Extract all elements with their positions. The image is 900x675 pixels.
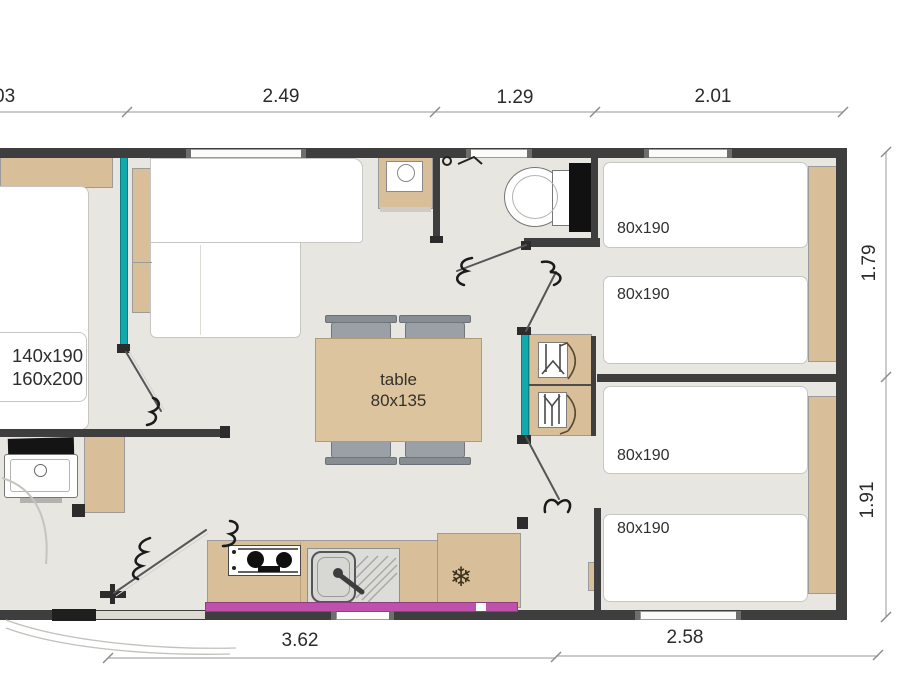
wall-wc-left [433, 158, 440, 242]
dining-table: table 80x135 [315, 338, 482, 442]
toilet-cistern [569, 163, 591, 232]
teal-partition-master [120, 154, 128, 346]
master-bed-size-1: 140x190 [12, 346, 83, 365]
dim-top-1: 2.49 [246, 87, 316, 107]
wc-vanity-shadow [380, 207, 431, 212]
window-cap [644, 149, 649, 158]
sofa-seam [200, 245, 201, 335]
window-cap [389, 611, 394, 620]
wardrobe-hall-niche-top [538, 342, 568, 378]
wall-wc-right [591, 158, 598, 242]
wall-right [836, 148, 847, 620]
wall-wardrobe-right [591, 336, 596, 436]
dim-bottom-1: 2.58 [650, 628, 720, 648]
chair-back [399, 457, 471, 465]
bay-window-notch [476, 603, 486, 611]
bath-vanity-base [20, 498, 62, 503]
table-size-label: 80x135 [371, 392, 427, 410]
dim-top-0: 03 [0, 87, 34, 107]
window-cap [301, 149, 306, 158]
single-bed-1-label: 80x190 [617, 221, 697, 238]
entrance-hinge-stem [110, 584, 115, 604]
chair-back [325, 457, 397, 465]
window-cap [727, 149, 732, 158]
hinge-mark-bath-wall [220, 426, 230, 438]
table-label: table [380, 371, 417, 389]
fridge-snowflake-icon: ❄ [444, 560, 478, 594]
leader-lines [6, 620, 236, 654]
bath-basin-drain [34, 464, 47, 477]
sofa-chaise [150, 242, 301, 338]
master-headboard-shelf [0, 156, 113, 188]
window-top-2 [470, 149, 529, 158]
bay-window-strip [205, 602, 518, 612]
entrance-threshold [52, 609, 96, 621]
master-bed-size-2: 160x200 [12, 369, 83, 388]
window-cap [527, 149, 532, 158]
hinge-mark-kitchen [517, 517, 528, 529]
window-bottom-2 [640, 611, 738, 620]
hob-burner-right [276, 552, 292, 568]
wall-bathroom [0, 429, 229, 437]
sofa-top [150, 158, 363, 243]
window-top-3 [648, 149, 729, 158]
toilet-bowl-inner [512, 175, 558, 219]
wardrobe-master-seam [133, 262, 152, 263]
hinge-mark-wc-door [521, 241, 531, 250]
wc-vanity-drain [397, 164, 415, 182]
sink-faucet [333, 568, 343, 578]
window-bottom-1 [336, 611, 391, 620]
bath-counter [84, 436, 125, 513]
wardrobe-hall-niche-bottom [538, 392, 567, 428]
floor-plan: 140x190 160x200 table 80x135 ❄ [0, 0, 900, 675]
single-bed-4-label: 80x190 [617, 521, 697, 538]
master-bed-label-box: 140x190 160x200 [0, 332, 87, 402]
window-cap [331, 611, 336, 620]
teal-hall-cap-top [517, 327, 531, 335]
sink-basin-inner [317, 557, 350, 597]
chair-seat [405, 440, 465, 458]
door-stop-bathroom [72, 504, 85, 517]
single-bed-3-label: 80x190 [617, 448, 697, 465]
wall-wc-bottom [524, 238, 600, 247]
window-cap [186, 149, 191, 158]
chair-seat [331, 440, 391, 458]
dim-top-2: 1.29 [480, 88, 550, 108]
teal-partition-hall [521, 332, 529, 438]
dim-right-0: 1.79 [860, 228, 880, 298]
teal-partition-master-cap [117, 344, 130, 353]
dim-right-1: 1.91 [858, 465, 878, 535]
entrance-doorway [96, 611, 205, 619]
hob-burner-left [247, 551, 264, 568]
teal-hall-cap-bottom [517, 435, 531, 444]
wall-between-bedrooms [597, 374, 837, 382]
window-cap [466, 149, 471, 158]
window-cap [635, 611, 640, 620]
window-cap [736, 611, 741, 620]
wardrobe-hall-divider [529, 384, 592, 386]
wall-bedroom-lower [594, 508, 601, 610]
dim-bottom-0: 3.62 [265, 631, 335, 651]
hinge-mark-wc-wall [430, 236, 443, 243]
dim-top-3: 2.01 [678, 87, 748, 107]
window-top-1 [190, 149, 303, 158]
single-bed-2-label: 80x190 [617, 287, 697, 304]
